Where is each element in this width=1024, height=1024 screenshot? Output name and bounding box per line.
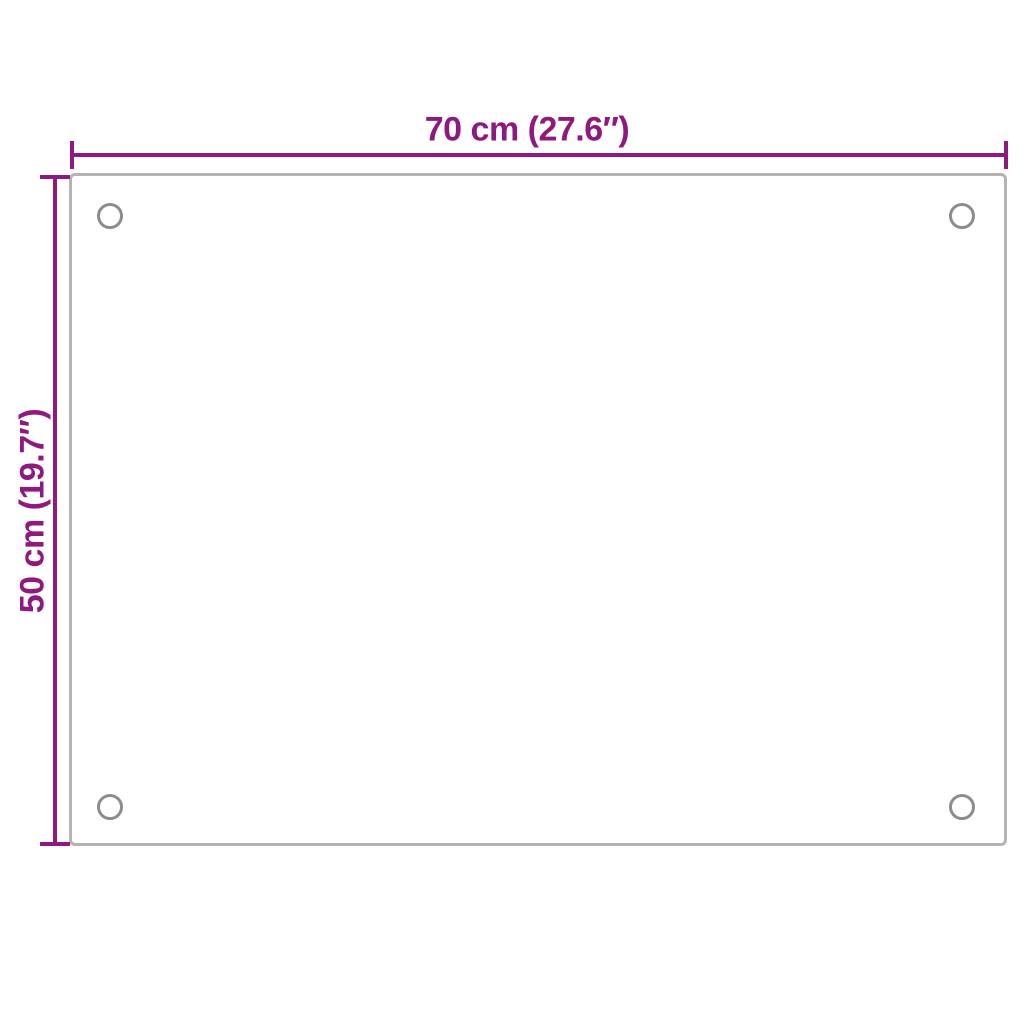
width-dimension-tick-right [1004,141,1008,169]
height-dimension-label: 50 cm (19.7″) [14,409,53,613]
height-dimension-line [53,177,57,845]
width-dimension-label: 70 cm (27.6″) [425,111,629,150]
mounting-hole-icon [949,203,975,229]
splashback-panel [69,173,1007,846]
width-dimension-tick-left [70,141,74,169]
width-dimension-line [72,153,1006,157]
mounting-hole-icon [97,203,123,229]
height-dimension-tick-bottom [40,842,70,846]
height-dimension-tick-top [40,175,70,179]
mounting-hole-icon [97,794,123,820]
mounting-hole-icon [949,794,975,820]
product-dimension-diagram: 70 cm (27.6″) 50 cm (19.7″) [0,0,1024,1024]
